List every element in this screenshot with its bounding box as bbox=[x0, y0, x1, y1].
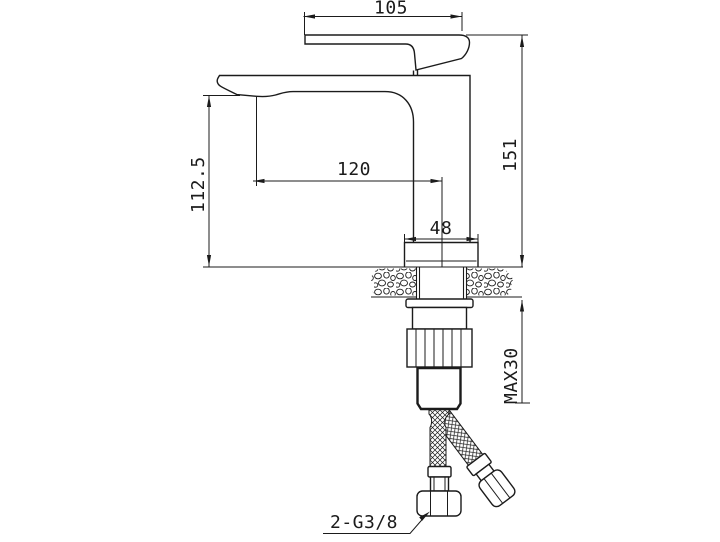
callout-label-g38: 2-G3/8 bbox=[330, 512, 398, 533]
dim-label-max30: MAX30 bbox=[501, 347, 522, 404]
dim-label-48: 48 bbox=[430, 218, 453, 239]
supply-hose-vertical bbox=[429, 410, 449, 467]
hose1-fitting bbox=[417, 467, 461, 517]
counter-hatch-left bbox=[371, 269, 416, 296]
threaded-shank bbox=[417, 268, 467, 300]
hose1-collar bbox=[428, 467, 451, 478]
dim-handle-length: 105 bbox=[304, 0, 463, 35]
faucet-technical-drawing: 105 151 112.5 120 48 MAX3 bbox=[0, 0, 720, 542]
callout-hose-thread: 2-G3/8 bbox=[323, 512, 430, 534]
knurled-locknut bbox=[407, 329, 472, 367]
dim-max-thickness: MAX30 bbox=[501, 300, 530, 404]
mounting-base bbox=[405, 243, 479, 267]
shank-neck bbox=[413, 308, 467, 330]
dim-base-width: 48 bbox=[405, 218, 479, 242]
dim-label-120: 120 bbox=[337, 159, 371, 180]
faucet-handle bbox=[305, 35, 470, 70]
hose1-hex-nut bbox=[417, 491, 461, 516]
dim-label-151: 151 bbox=[500, 138, 521, 172]
hose-cylinder bbox=[418, 368, 461, 409]
hose1-tube bbox=[431, 477, 449, 491]
dim-overall-height: 151 bbox=[466, 35, 528, 267]
shank-flange bbox=[406, 299, 473, 308]
counter-hatch-right bbox=[467, 269, 513, 296]
faucet-technical-drawing-sheet: 105 151 112.5 120 48 MAX3 bbox=[0, 0, 720, 542]
dim-label-105: 105 bbox=[374, 0, 408, 19]
dim-spout-height: 112.5 bbox=[188, 96, 240, 267]
dim-label-112-5: 112.5 bbox=[188, 156, 209, 213]
countertop-section bbox=[203, 267, 523, 297]
fixing-hardware bbox=[406, 299, 473, 367]
